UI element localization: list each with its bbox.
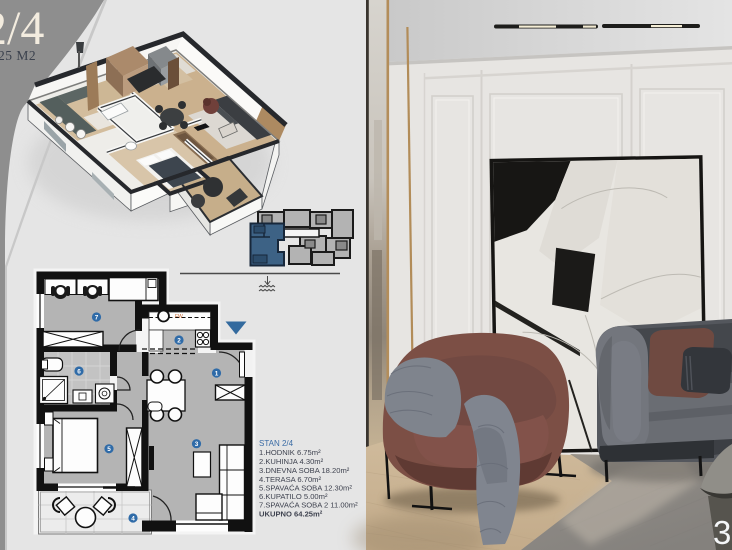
svg-text:2: 2 xyxy=(177,337,181,344)
svg-text:3: 3 xyxy=(713,514,731,550)
svg-text:5: 5 xyxy=(107,446,111,453)
svg-text:3.DNEVNA SOBA 18.20m²: 3.DNEVNA SOBA 18.20m² xyxy=(259,466,350,475)
svg-text:1: 1 xyxy=(215,370,219,377)
svg-text:25 M2: 25 M2 xyxy=(0,48,36,63)
svg-text:2.KUHINJA 4.30m²: 2.KUHINJA 4.30m² xyxy=(259,457,324,466)
svg-text:4: 4 xyxy=(131,515,135,522)
svg-text:3: 3 xyxy=(195,441,199,448)
svg-text:1.HODNIK 6.75m²: 1.HODNIK 6.75m² xyxy=(259,448,321,457)
svg-text:7: 7 xyxy=(95,314,99,321)
svg-text:7.SPAVAĆA SOBA 2 11.00m²: 7.SPAVAĆA SOBA 2 11.00m² xyxy=(259,501,358,510)
svg-text:6: 6 xyxy=(77,368,81,375)
svg-text:STAN 2/4: STAN 2/4 xyxy=(259,439,294,448)
svg-text:UKUPNO 64.25m²: UKUPNO 64.25m² xyxy=(259,510,323,519)
svg-text:FW: FW xyxy=(175,314,183,320)
